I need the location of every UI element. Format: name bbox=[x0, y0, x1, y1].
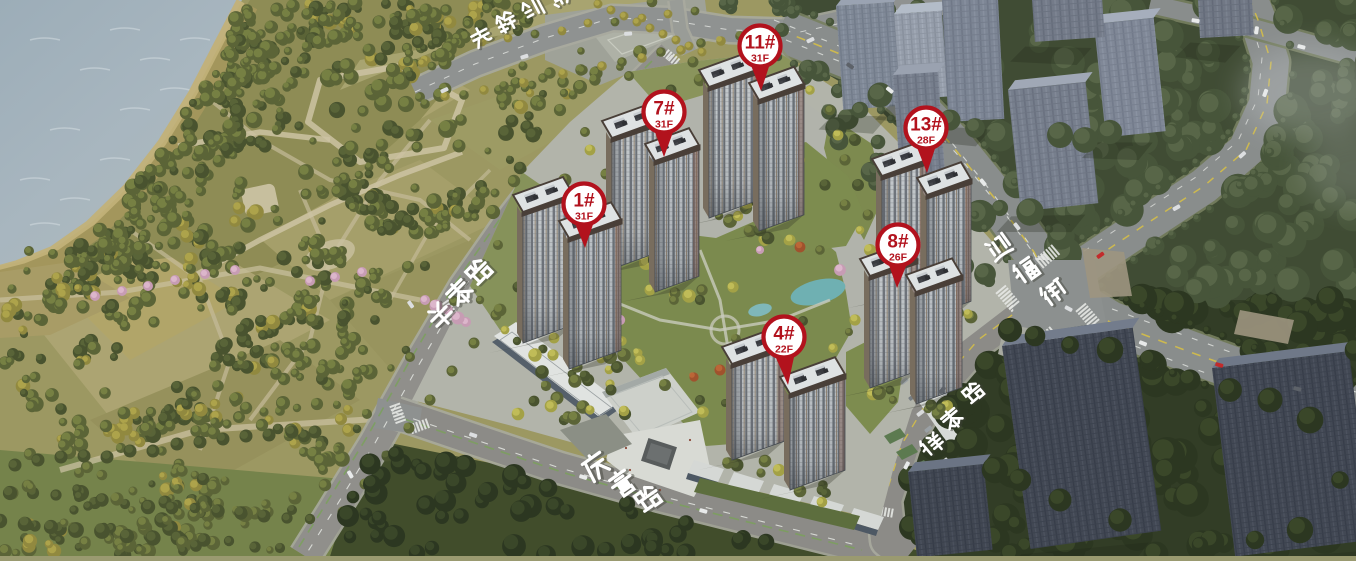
svg-text:26F: 26F bbox=[889, 252, 908, 264]
svg-text:31F: 31F bbox=[575, 211, 594, 223]
svg-text:1#: 1# bbox=[573, 191, 595, 212]
svg-text:31F: 31F bbox=[655, 119, 674, 131]
svg-text:8#: 8# bbox=[887, 232, 909, 253]
svg-text:31F: 31F bbox=[751, 53, 770, 65]
svg-text:4#: 4# bbox=[773, 324, 795, 345]
svg-text:22F: 22F bbox=[775, 344, 794, 356]
svg-text:7#: 7# bbox=[653, 99, 675, 120]
svg-text:11#: 11# bbox=[745, 33, 776, 54]
svg-text:13#: 13# bbox=[910, 115, 942, 136]
svg-text:28F: 28F bbox=[917, 135, 936, 147]
